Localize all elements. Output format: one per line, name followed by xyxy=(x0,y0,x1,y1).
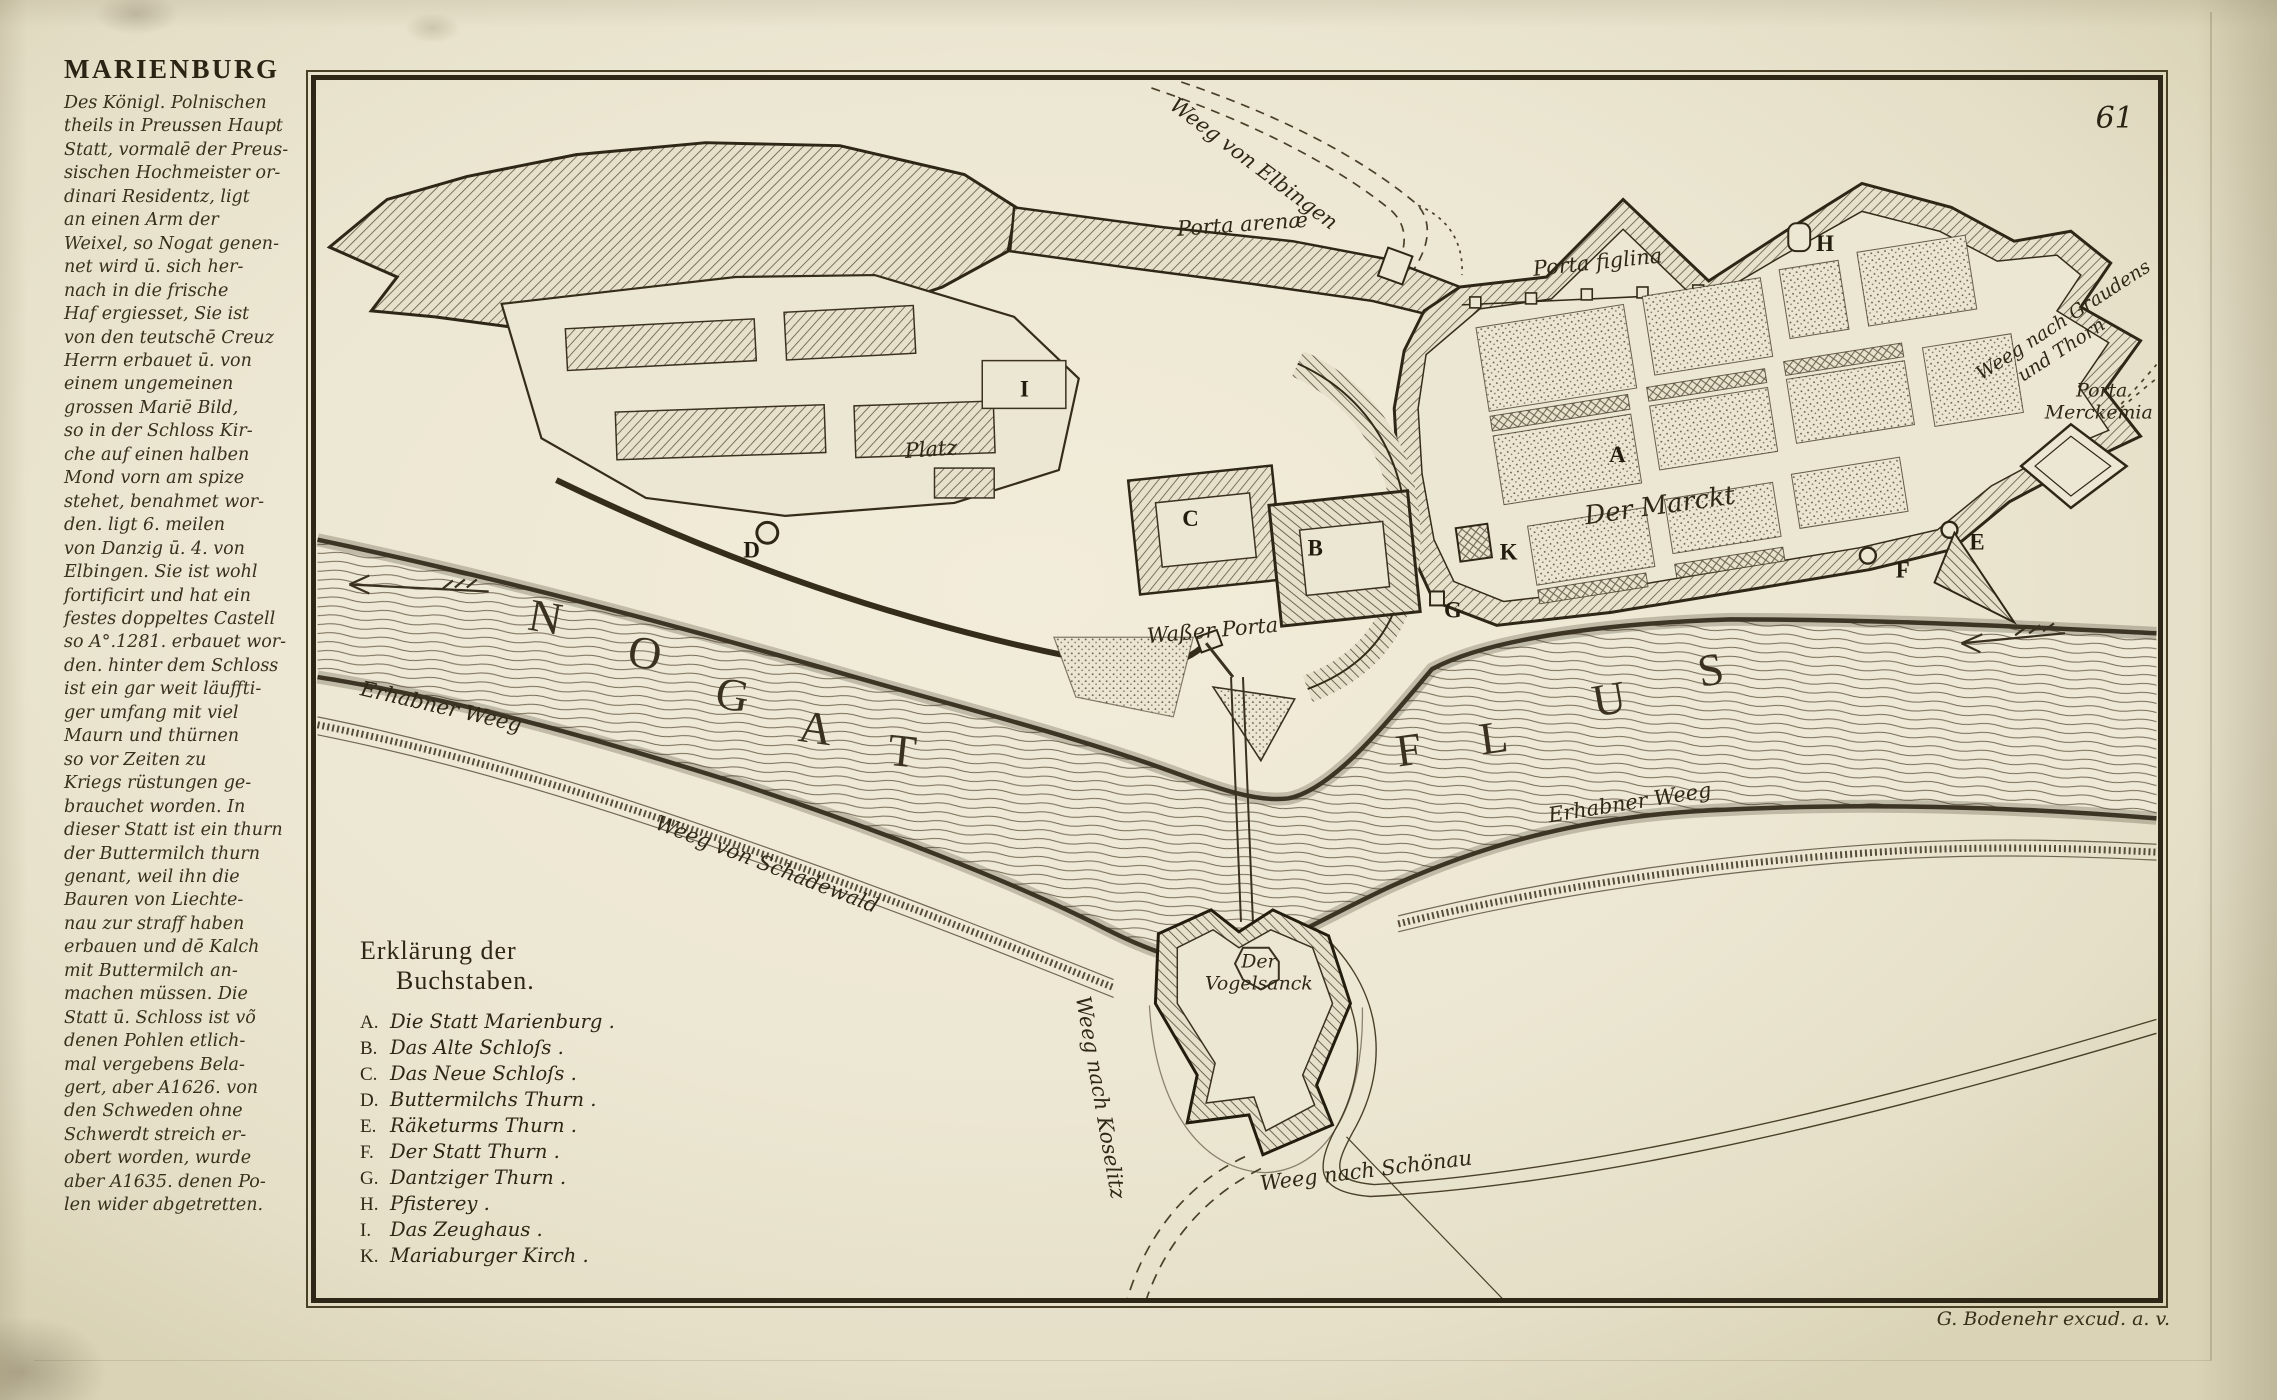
legend-item: K.Mariaburger Kirch . xyxy=(360,1243,690,1269)
legend-label: Pfisterey . xyxy=(390,1191,490,1216)
svg-text:Der: Der xyxy=(1240,951,1277,973)
svg-text:T: T xyxy=(886,724,919,778)
legend-item: B.Das Alte Schloſs . xyxy=(360,1035,690,1061)
legend-item: F.Der Statt Thurn . xyxy=(360,1139,690,1165)
svg-text:Porta: Porta xyxy=(2075,379,2127,401)
legend-key: D. xyxy=(360,1088,390,1113)
floodplain-ravelin xyxy=(1213,687,1295,761)
legend-key: G. xyxy=(360,1166,390,1191)
marker-E: E xyxy=(1969,530,1984,555)
label-platz: Platz xyxy=(903,435,959,463)
legend-key: F. xyxy=(360,1140,390,1165)
buttermilch-tower xyxy=(757,522,778,543)
marker-F: F xyxy=(1896,558,1910,583)
legend-item: E.Räketurms Thurn . xyxy=(360,1113,690,1139)
legend-key: E. xyxy=(360,1114,390,1139)
marker-H: H xyxy=(1816,231,1834,256)
legend-key: A. xyxy=(360,1010,390,1035)
dike-road-southeast xyxy=(1398,840,2156,932)
legend-item: C.Das Neue Schloſs . xyxy=(360,1061,690,1087)
legend-label: Der Statt Thurn . xyxy=(390,1139,560,1164)
marker-I: I xyxy=(1020,376,1029,401)
map-title: MARIENBURG xyxy=(64,54,314,85)
legend-label: Räketurms Thurn . xyxy=(390,1113,577,1138)
label-weeg-nach-koselitz: Weeg nach Koselitz xyxy=(1071,994,1130,1202)
legend-key: C. xyxy=(360,1062,390,1087)
marker-G: G xyxy=(1444,597,1462,622)
legend-label: Die Statt Marienburg . xyxy=(390,1009,615,1034)
marienkirche xyxy=(1456,524,1492,562)
svg-text:Vogelsanck: Vogelsanck xyxy=(1205,973,1313,995)
legend-item: H.Pfisterey . xyxy=(360,1191,690,1217)
marker-A: A xyxy=(1609,442,1626,467)
svg-text:A: A xyxy=(796,700,836,755)
engraver-imprint: G. Bodenehr excud. a. v. xyxy=(1890,1308,2170,1330)
legend-item: G.Dantziger Thurn . xyxy=(360,1165,690,1191)
legend-key: K. xyxy=(360,1244,390,1269)
floodplain-patch-west xyxy=(1054,637,1193,717)
map-frame-inner: I C B D K G A H E F 61 Weeg von Elbingen… xyxy=(311,75,2163,1303)
legend-key: H. xyxy=(360,1192,390,1217)
legend-label: Das Alte Schloſs . xyxy=(390,1035,564,1060)
marker-C: C xyxy=(1182,506,1199,531)
map-description-text: Des Königl. Polnischen theils in Preusse… xyxy=(64,92,314,1218)
map-frame: I C B D K G A H E F 61 Weeg von Elbingen… xyxy=(306,70,2168,1308)
marker-B: B xyxy=(1308,536,1323,561)
marker-K: K xyxy=(1500,540,1518,565)
legend: Erklärung der Buchstaben. A.Die Statt Ma… xyxy=(360,936,690,1269)
stadt-thurn-tower xyxy=(1860,548,1876,564)
legend-title-line1: Erklärung der xyxy=(360,936,517,965)
castle-alte-schloss xyxy=(1269,491,1420,626)
legend-label: Dantziger Thurn . xyxy=(390,1165,566,1190)
road-to-schonau xyxy=(1301,928,2157,1298)
legend-label: Mariaburger Kirch . xyxy=(390,1243,589,1268)
legend-label: Das Zeughaus . xyxy=(390,1217,543,1242)
sidebar: MARIENBURG Des Königl. Polnischen theils… xyxy=(64,54,314,1218)
label-porta-arenae: Porta arenæ xyxy=(1175,208,1308,241)
label-weeg-nach-schonau: Weeg nach Schönau xyxy=(1259,1146,1474,1196)
castle-neue-schloss xyxy=(1128,466,1283,595)
legend-item: D.Buttermilchs Thurn . xyxy=(360,1087,690,1113)
legend-key: I. xyxy=(360,1218,390,1243)
legend-label: Das Neue Schloſs . xyxy=(390,1061,577,1086)
svg-text:Merckemia: Merckemia xyxy=(2044,401,2153,423)
plate-number: 61 xyxy=(2096,101,2134,136)
road-to-koselitz xyxy=(1128,1157,1261,1298)
pfisterey-gate xyxy=(1788,223,1810,251)
legend-item: I.Das Zeughaus . xyxy=(360,1217,690,1243)
legend-title: Erklärung der Buchstaben. xyxy=(360,936,690,996)
legend-key: B. xyxy=(360,1036,390,1061)
dantziger-thurn xyxy=(1430,591,1444,605)
legend-item: A.Die Statt Marienburg . xyxy=(360,1009,690,1035)
marker-D: D xyxy=(743,538,760,563)
legend-items: A.Die Statt Marienburg . B.Das Alte Schl… xyxy=(360,1009,690,1269)
legend-label: Buttermilchs Thurn . xyxy=(390,1087,596,1112)
legend-title-line2: Buchstaben. xyxy=(360,966,690,996)
